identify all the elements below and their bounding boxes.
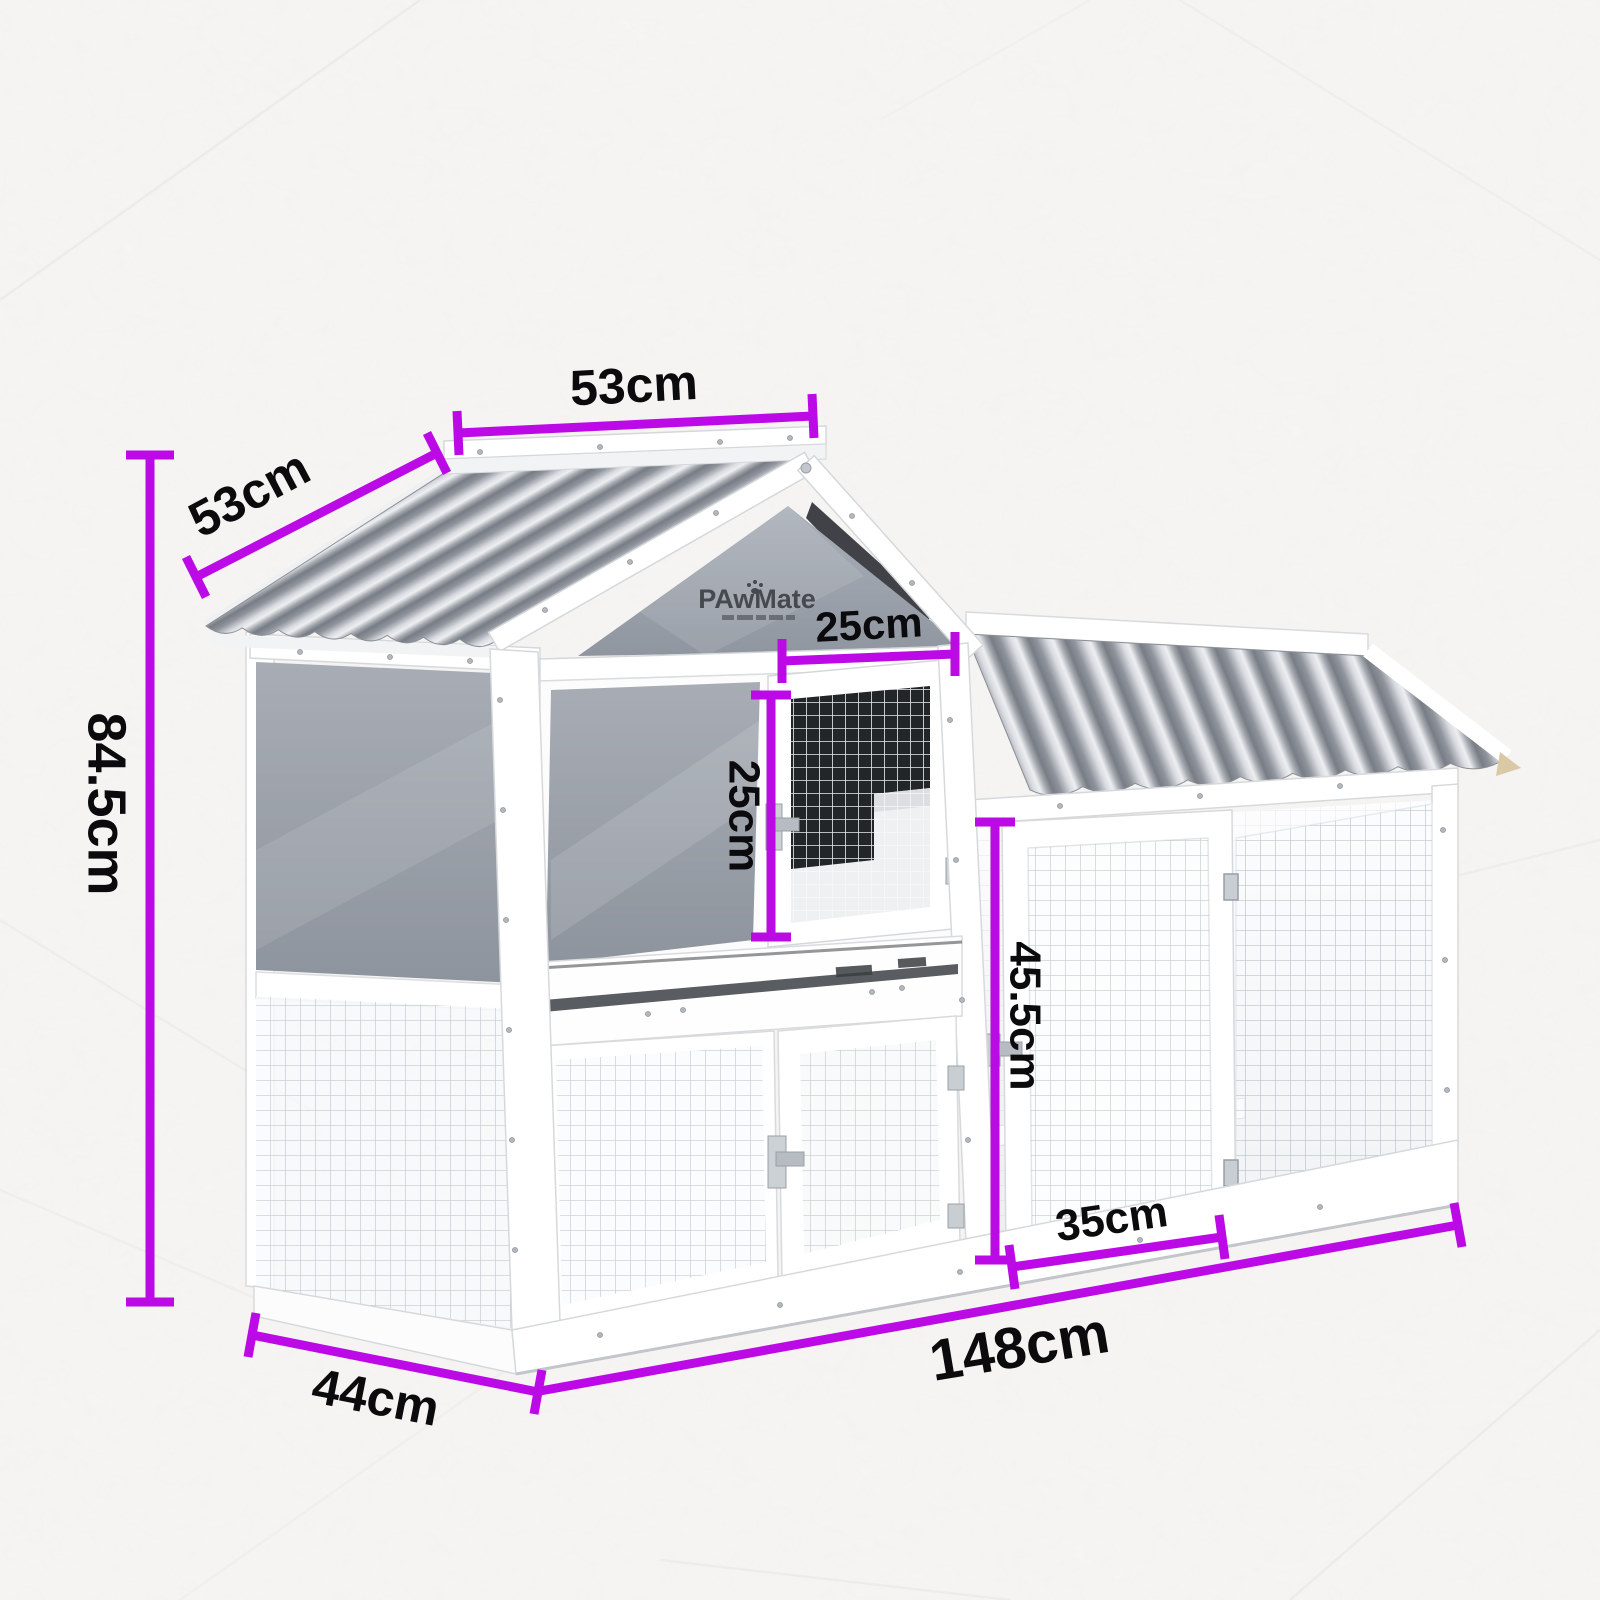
run-side-mesh-panel xyxy=(1236,804,1432,1186)
hutch-dimension-diagram: PAwMate xyxy=(0,0,1600,1600)
label-total-height: 84.5cm xyxy=(77,712,137,895)
side-mesh-panel xyxy=(256,996,536,1332)
run-door-hinge-bottom xyxy=(1224,1160,1238,1186)
product-dimensions-infographic: Dimensions 148cm(L) x 44cm(W) x 84.5cm(H… xyxy=(0,0,1600,1600)
label-roof-width: 53cm xyxy=(568,354,699,417)
hutch-door xyxy=(766,659,963,947)
lower-door xyxy=(768,1016,964,1279)
label-hutch-door-height: 25cm xyxy=(719,760,768,873)
label-run-height: 45.5cm xyxy=(1000,941,1049,1090)
lower-fixed-mesh-panel xyxy=(542,1031,778,1323)
label-hutch-door-width: 25cm xyxy=(814,598,924,651)
lower-door-hinge-top xyxy=(948,1066,964,1090)
run-door-hinge-top xyxy=(1224,874,1238,900)
lower-door-hinge-bottom xyxy=(948,1204,964,1228)
brand-logo-text: PAwMate xyxy=(698,584,816,614)
run-right-post xyxy=(1432,784,1458,1150)
